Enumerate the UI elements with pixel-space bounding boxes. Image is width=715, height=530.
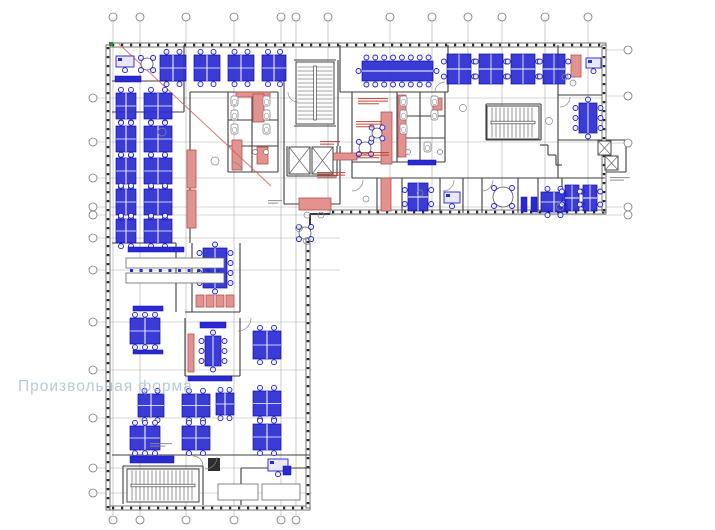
window-mullion [307, 412, 310, 414]
window-mullion [485, 211, 487, 214]
micro-annotation [356, 121, 382, 127]
window-mullion [589, 44, 591, 47]
chair [364, 55, 369, 60]
window-mullion [463, 44, 465, 47]
chair [199, 339, 204, 344]
chair [408, 82, 413, 87]
chair [133, 420, 138, 425]
window-mullion [307, 340, 310, 342]
plant [546, 118, 553, 125]
window-mullion [107, 47, 110, 49]
window-mullion [307, 430, 310, 432]
chair [417, 82, 422, 87]
window-mullion [307, 277, 310, 279]
workstation-cluster [144, 152, 172, 189]
chair [417, 55, 422, 60]
chair [399, 55, 404, 60]
sink [406, 150, 411, 155]
blue-furniture [128, 247, 184, 252]
door-swing [560, 97, 570, 107]
workstation-cluster [505, 54, 540, 84]
window-mullion [292, 507, 294, 510]
grid-bubble [89, 234, 97, 242]
chair [129, 213, 134, 218]
chair [163, 120, 168, 125]
grid-bubble [624, 203, 632, 211]
window-mullion [395, 211, 397, 214]
window-mullion [148, 44, 150, 47]
chair [119, 87, 124, 92]
chair [296, 237, 301, 242]
workstation-cluster [160, 49, 186, 86]
chair [119, 152, 124, 157]
window-mullion [490, 44, 492, 47]
chair [272, 325, 277, 330]
window-mullion [107, 137, 110, 139]
plant [570, 80, 576, 86]
window-mullion [283, 44, 285, 47]
window-mullion [494, 211, 496, 214]
grid-bubble [89, 489, 97, 497]
workstation-cluster [116, 120, 136, 157]
window-mullion [107, 344, 110, 346]
window-mullion [107, 92, 110, 94]
desk [444, 192, 460, 209]
chair [218, 387, 223, 392]
grid-bubble [277, 516, 285, 524]
window-mullion [107, 83, 110, 85]
stool [188, 269, 191, 272]
window-mullion [107, 461, 110, 463]
window-mullion [247, 507, 249, 510]
chair [598, 189, 603, 194]
window-mullion [238, 507, 240, 510]
chair [222, 349, 227, 354]
red-partition [226, 295, 234, 307]
window-mullion [307, 457, 310, 459]
window-mullion [307, 313, 310, 315]
chair [510, 204, 515, 209]
wc-fixture [263, 96, 270, 106]
window-mullion [307, 403, 310, 405]
sink [264, 150, 269, 155]
chair [187, 420, 192, 425]
window-mullion [603, 65, 606, 67]
red-partition [187, 150, 196, 188]
chair [577, 189, 582, 194]
window-mullion [107, 209, 110, 211]
chair [266, 82, 271, 87]
chair [119, 120, 124, 125]
window-mullion [301, 44, 303, 47]
chair [153, 345, 158, 350]
window-mullion [373, 44, 375, 47]
chair [228, 261, 233, 266]
red-partition [216, 295, 224, 307]
grid-bubble [89, 318, 97, 326]
window-mullion [512, 211, 514, 214]
chair [232, 49, 237, 54]
window-mullion [107, 326, 110, 328]
chair [278, 49, 283, 54]
chair [382, 82, 387, 87]
workstation-cluster [262, 49, 286, 86]
chair [213, 289, 218, 294]
chair [138, 55, 143, 60]
window-mullion [121, 507, 123, 510]
grid-bubble [624, 92, 632, 100]
window-mullion [229, 507, 231, 510]
wc-fixture [263, 124, 270, 134]
chair [227, 387, 232, 392]
chair [119, 213, 124, 218]
grid-bubble [89, 211, 97, 219]
grid-bubble [584, 13, 592, 21]
chair [129, 87, 134, 92]
blue-furniture [200, 322, 226, 328]
window-mullion [139, 507, 141, 510]
workstation-cluster [228, 49, 254, 86]
grid-bubble [386, 13, 394, 21]
window-mullion [107, 227, 110, 229]
conference-table [573, 97, 603, 139]
red-partition [206, 295, 214, 307]
window-mullion [220, 507, 222, 510]
red-partition [381, 178, 391, 211]
chair [228, 251, 233, 256]
chair [505, 59, 510, 64]
grid-bubble [624, 139, 632, 147]
window-mullion [307, 358, 310, 360]
window-mullion [472, 44, 474, 47]
window-mullion [193, 507, 195, 510]
chair [441, 59, 446, 64]
chair [129, 183, 134, 188]
workstation-cluster [577, 185, 602, 211]
workstation-cluster [441, 54, 476, 84]
chair [473, 74, 478, 79]
window-mullion [328, 44, 330, 47]
plant [211, 157, 219, 165]
workstation-cluster [473, 54, 508, 84]
blue-furniture [521, 197, 527, 212]
window-mullion [107, 407, 110, 409]
window-mullion [449, 211, 451, 214]
window-mullion [418, 44, 420, 47]
chair [391, 82, 396, 87]
workstation-cluster [537, 54, 570, 84]
window-mullion [256, 44, 258, 47]
window-mullion [238, 44, 240, 47]
chair [198, 49, 203, 54]
chair [586, 134, 591, 139]
window-mullion [382, 44, 384, 47]
blue-furniture [531, 197, 537, 212]
chair [164, 82, 169, 87]
window-mullion [319, 44, 321, 47]
staircase [487, 106, 539, 139]
grid-bubble [136, 516, 144, 524]
window-mullion [107, 128, 110, 130]
window-mullion [107, 281, 110, 283]
workstation-cluster [216, 387, 234, 420]
elevator-shaft [312, 147, 333, 174]
window-mullion [107, 362, 110, 364]
chair [537, 59, 542, 64]
window-mullion [307, 259, 310, 261]
chair [309, 237, 314, 242]
staircase [296, 62, 334, 124]
window-mullion [202, 44, 204, 47]
conference-table [199, 330, 227, 372]
window-mullion [359, 211, 361, 214]
wc-fixture [400, 110, 407, 120]
chair [391, 55, 396, 60]
window-mullion [107, 200, 110, 202]
chair [434, 69, 439, 74]
chair [163, 152, 168, 157]
window-mullion [107, 443, 110, 445]
workstation-cluster [253, 418, 281, 455]
floor-plan-page: Произвольная форма [0, 0, 715, 530]
window-mullion [166, 44, 168, 47]
window-mullion [107, 488, 110, 490]
window-mullion [307, 376, 310, 378]
window-mullion [307, 448, 310, 450]
window-mullion [355, 44, 357, 47]
green-mark [109, 42, 113, 46]
window-mullion [157, 44, 159, 47]
chair [201, 388, 206, 393]
chair [537, 74, 542, 79]
window-mullion [307, 286, 310, 288]
chair [245, 82, 250, 87]
chair [258, 451, 263, 456]
chair [429, 202, 434, 207]
chair [123, 68, 128, 73]
window-mullion [307, 475, 310, 477]
counter [218, 484, 258, 500]
chair [505, 74, 510, 79]
window-mullion [307, 385, 310, 387]
window-mullion [107, 245, 110, 247]
window-mullion [562, 44, 564, 47]
window-mullion [193, 44, 195, 47]
chair [510, 186, 515, 191]
plant [460, 105, 467, 112]
door-swing [482, 180, 493, 191]
window-mullion [307, 268, 310, 270]
chair [129, 120, 134, 125]
window-mullion [107, 119, 110, 121]
window-mullion [307, 322, 310, 324]
window-mullion [603, 101, 606, 103]
window-mullion [107, 506, 110, 508]
chair [369, 125, 374, 130]
window-mullion [409, 44, 411, 47]
stool [149, 269, 152, 272]
grid-bubble [89, 138, 97, 146]
grid-bubble [89, 266, 97, 274]
stool [140, 269, 143, 272]
blue-furniture [115, 76, 141, 82]
window-mullion [265, 507, 267, 510]
sink [253, 150, 258, 155]
chair [356, 69, 361, 74]
grid-bubble [89, 366, 97, 374]
wc-fixture [231, 96, 238, 106]
chair [598, 106, 603, 111]
workstation-cluster [130, 420, 160, 455]
chair [450, 204, 455, 209]
chair [276, 472, 281, 477]
chair [232, 82, 237, 87]
chair [364, 82, 369, 87]
grid-bubble [109, 13, 117, 21]
chair [133, 345, 138, 350]
chair [143, 312, 148, 317]
red-partition [196, 295, 204, 307]
wc-fixture [231, 124, 238, 134]
micro-annotation [610, 177, 630, 181]
blue-furniture [133, 350, 163, 354]
chair [177, 49, 182, 54]
window-mullion [107, 353, 110, 355]
window-mullion [247, 44, 249, 47]
watermark-text: Произвольная форма [18, 378, 193, 396]
red-partition [333, 153, 357, 160]
window-mullion [107, 101, 110, 103]
grid-bubble [428, 13, 436, 21]
window-mullion [274, 44, 276, 47]
bubble-layer [89, 13, 632, 524]
window-mullion [603, 56, 606, 58]
chair [119, 244, 124, 249]
window-mullion [307, 331, 310, 333]
chair [149, 183, 154, 188]
wc-fixture [400, 124, 407, 134]
window-mullion [332, 211, 334, 214]
chair [197, 251, 202, 256]
chair [573, 116, 578, 121]
elevator-shaft [598, 141, 611, 155]
chair [119, 183, 124, 188]
wc-fixture [400, 96, 407, 106]
chair [199, 349, 204, 354]
chair [492, 204, 497, 209]
window-mullion [307, 250, 310, 252]
chair [245, 49, 250, 54]
window-mullion [107, 155, 110, 157]
window-mullion [107, 182, 110, 184]
grid-bubble [89, 414, 97, 422]
window-mullion [107, 416, 110, 418]
red-partition [571, 55, 581, 77]
wc-fixture [424, 142, 431, 152]
window-mullion [107, 470, 110, 472]
red-partition [299, 198, 331, 210]
blue-furniture [188, 376, 232, 381]
counter [262, 484, 300, 500]
chair [426, 55, 431, 60]
workstation-cluster [144, 87, 172, 124]
chair [258, 325, 263, 330]
window-mullion [467, 211, 469, 214]
window-mullion [404, 211, 406, 214]
chair [373, 82, 378, 87]
grid-bubble [324, 13, 332, 21]
chair [258, 385, 263, 390]
chair [373, 55, 378, 60]
chair [598, 202, 603, 207]
chair [559, 189, 564, 194]
chair [163, 213, 168, 218]
chair [133, 312, 138, 317]
window-mullion [307, 241, 310, 243]
desk [116, 56, 134, 73]
chair [598, 126, 603, 131]
chair [163, 183, 168, 188]
chair [143, 451, 148, 456]
window-mullion [265, 44, 267, 47]
micro-annotation [358, 98, 388, 104]
round-table [296, 224, 313, 241]
window-mullion [107, 191, 110, 193]
window-mullion [107, 74, 110, 76]
chair [227, 416, 232, 421]
chair [545, 186, 550, 191]
window-mullion [157, 507, 159, 510]
window-mullion [481, 44, 483, 47]
stool [207, 269, 210, 272]
window-mullion [307, 394, 310, 396]
window-mullion [139, 44, 141, 47]
door-swing [352, 180, 363, 191]
window-mullion [580, 44, 582, 47]
chair [399, 82, 404, 87]
chair [153, 312, 158, 317]
window-mullion [526, 44, 528, 47]
round-table [492, 186, 515, 209]
micro-annotation [268, 200, 282, 204]
grid-bubble [182, 516, 190, 524]
chair [149, 152, 154, 157]
window-mullion [364, 44, 366, 47]
workstation-cluster [253, 385, 281, 421]
chair [591, 69, 596, 74]
elevator-shaft [289, 147, 310, 174]
window-mullion [436, 44, 438, 47]
window-mullion [307, 439, 310, 441]
window-mullion [107, 290, 110, 292]
workstation-cluster [253, 325, 281, 364]
window-mullion [256, 507, 258, 510]
window-mullion [346, 44, 348, 47]
grid-bubble [292, 516, 300, 524]
grid-bubble [624, 46, 632, 54]
chair [380, 136, 385, 141]
grid-bubble [89, 203, 97, 211]
chair [382, 55, 387, 60]
window-mullion [310, 44, 312, 47]
chair [211, 82, 216, 87]
chair [218, 416, 223, 421]
blue-furniture [133, 306, 163, 311]
window-mullion [107, 263, 110, 265]
chair [441, 74, 446, 79]
chair [228, 271, 233, 276]
counter [126, 273, 224, 283]
